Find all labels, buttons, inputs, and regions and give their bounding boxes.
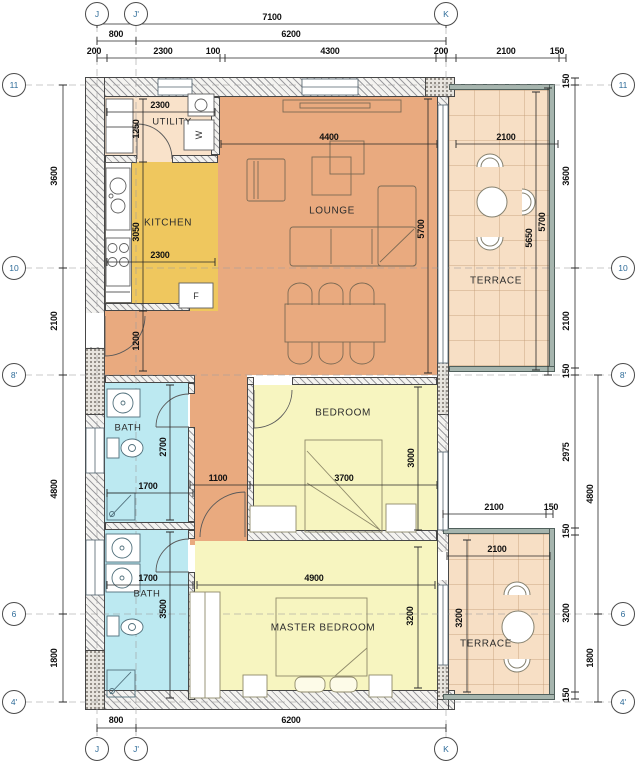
- master-bedroom-furniture: [190, 592, 392, 698]
- dim-master-width: 4900: [304, 573, 323, 583]
- dim-corridor: 1200: [131, 331, 141, 350]
- dim-bath-bottom-width: 1700: [138, 573, 157, 583]
- dim-left-2100: 2100: [49, 311, 59, 330]
- grid-bubble-j-bottom: J: [85, 737, 109, 761]
- dim-right-2100: 2100: [561, 311, 571, 330]
- dim-j-jp: 800: [109, 29, 123, 39]
- dim-bath-top-depth: 2700: [158, 437, 168, 456]
- dim-master-depth: 3200: [405, 606, 415, 625]
- room-label-bath-top: BATH: [114, 423, 141, 434]
- dim-bedroom-width: 3700: [334, 473, 353, 483]
- dim-terrace-top-width: 2100: [496, 132, 515, 142]
- grid-label: 10: [618, 263, 627, 273]
- grid-label: 11: [619, 80, 628, 90]
- grid-label: J: [95, 744, 99, 754]
- dim-terrace-bottom-width: 2100: [487, 544, 506, 554]
- room-label-lounge: LOUNGE: [309, 206, 355, 217]
- grid-label: 6: [621, 609, 626, 619]
- dim-right-4800: 4800: [585, 484, 595, 503]
- grid-bubble-6-left: 6: [2, 602, 26, 626]
- grid-bubble-8p-left: 8': [2, 363, 26, 387]
- grid-label: 4': [11, 697, 17, 707]
- dim-top-2100: 2100: [496, 46, 515, 56]
- dim-top-4300: 4300: [320, 46, 339, 56]
- dim-top-150: 150: [550, 46, 564, 56]
- room-label-utility: UTILITY: [152, 117, 192, 128]
- dim-terrace-bottom-depth: 3200: [454, 608, 464, 627]
- bedroom-furniture: [250, 440, 416, 532]
- room-label-bath-bottom: BATH: [133, 589, 160, 600]
- grid-bubble-j-top: J: [85, 2, 109, 26]
- fridge-label: F: [193, 291, 199, 301]
- grid-bubble-10-right: 10: [611, 256, 635, 280]
- dim-right-3200: 3200: [561, 603, 571, 622]
- dim-top-200a: 200: [87, 46, 101, 56]
- grid-bubble-11-left: 11: [2, 73, 26, 97]
- dim-top-200b: 200: [434, 46, 448, 56]
- dim-terrace-bottom-offset: 150: [544, 502, 558, 512]
- room-label-bedroom: BEDROOM: [315, 408, 371, 419]
- floor-plan: J J' K J J' K 11 10 8' 6 4' 11 10 8' 6 4…: [0, 0, 638, 771]
- dim-right-150b: 150: [561, 364, 571, 378]
- grid-bubble-k-top: K: [434, 2, 458, 26]
- grid-label: 4': [620, 697, 626, 707]
- dim-bath-top-width: 1700: [138, 481, 157, 491]
- grid-bubble-8p-right: 8': [611, 363, 635, 387]
- dim-bottom-6200: 6200: [281, 715, 300, 725]
- dim-lounge-width: 4400: [319, 132, 338, 142]
- dim-bedroom-depth: 3000: [406, 448, 416, 467]
- grid-bubble-6-right: 6: [611, 602, 635, 626]
- room-label-terrace-bottom: TERRACE: [460, 639, 512, 650]
- dim-kitchen-width: 2300: [150, 250, 169, 260]
- dim-terrace-top-depth: 5650: [524, 228, 534, 247]
- grid-bubble-k-bottom: K: [434, 737, 458, 761]
- grid-bubble-10-left: 10: [2, 256, 26, 280]
- dim-utility-depth: 1250: [131, 119, 141, 138]
- grid-bubble-11-right: 11: [611, 73, 635, 97]
- grid-label: 6: [12, 609, 17, 619]
- washer-label: W: [194, 131, 204, 140]
- dim-top-2300: 2300: [153, 46, 172, 56]
- dim-left-3600: 3600: [49, 166, 59, 185]
- room-label-terrace-top: TERRACE: [470, 276, 522, 287]
- grid-label: J': [133, 9, 139, 19]
- room-label-master-bedroom: MASTER BEDROOM: [271, 623, 376, 634]
- bath-fixtures: [106, 389, 143, 697]
- grid-label: J: [95, 9, 99, 19]
- grid-bubble-jp-bottom: J': [124, 737, 148, 761]
- grid-label: 8': [620, 370, 626, 380]
- dim-terrace-top-glazing: 5700: [537, 212, 547, 231]
- dim-bottom-800: 800: [109, 715, 123, 725]
- room-label-kitchen: KITCHEN: [144, 218, 192, 229]
- grid-bubble-4p-left: 4': [2, 690, 26, 714]
- grid-bubble-4p-right: 4': [611, 690, 635, 714]
- plan-linework: [0, 0, 638, 771]
- dim-right-1800: 1800: [585, 648, 595, 667]
- dim-top-100: 100: [206, 46, 220, 56]
- dim-right-150c: 150: [561, 524, 571, 538]
- dim-jp-k: 6200: [281, 29, 300, 39]
- dim-overall-width: 7100: [262, 12, 281, 22]
- grid-label: J': [133, 744, 139, 754]
- grid-label: K: [443, 744, 449, 754]
- grid-label: 10: [9, 263, 18, 273]
- dim-right-3600: 3600: [561, 166, 571, 185]
- dim-right-150d: 150: [561, 688, 571, 702]
- dim-lounge-depth: 5700: [416, 219, 426, 238]
- dim-left-4800: 4800: [49, 479, 59, 498]
- dim-left-1800: 1800: [49, 648, 59, 667]
- grid-label: 8': [11, 370, 17, 380]
- dim-right-150a: 150: [561, 74, 571, 88]
- dim-bath-bottom-depth: 3500: [158, 599, 168, 618]
- grid-bubble-jp-top: J': [124, 2, 148, 26]
- dim-terrace-bottom-width-outer: 2100: [484, 502, 503, 512]
- grid-label: 11: [10, 80, 19, 90]
- dim-right-2975: 2975: [561, 442, 571, 461]
- dim-hall-width: 1100: [209, 473, 228, 483]
- dim-kitchen-depth: 3050: [131, 222, 141, 241]
- grid-label: K: [443, 9, 449, 19]
- dim-utility-width: 2300: [150, 100, 169, 110]
